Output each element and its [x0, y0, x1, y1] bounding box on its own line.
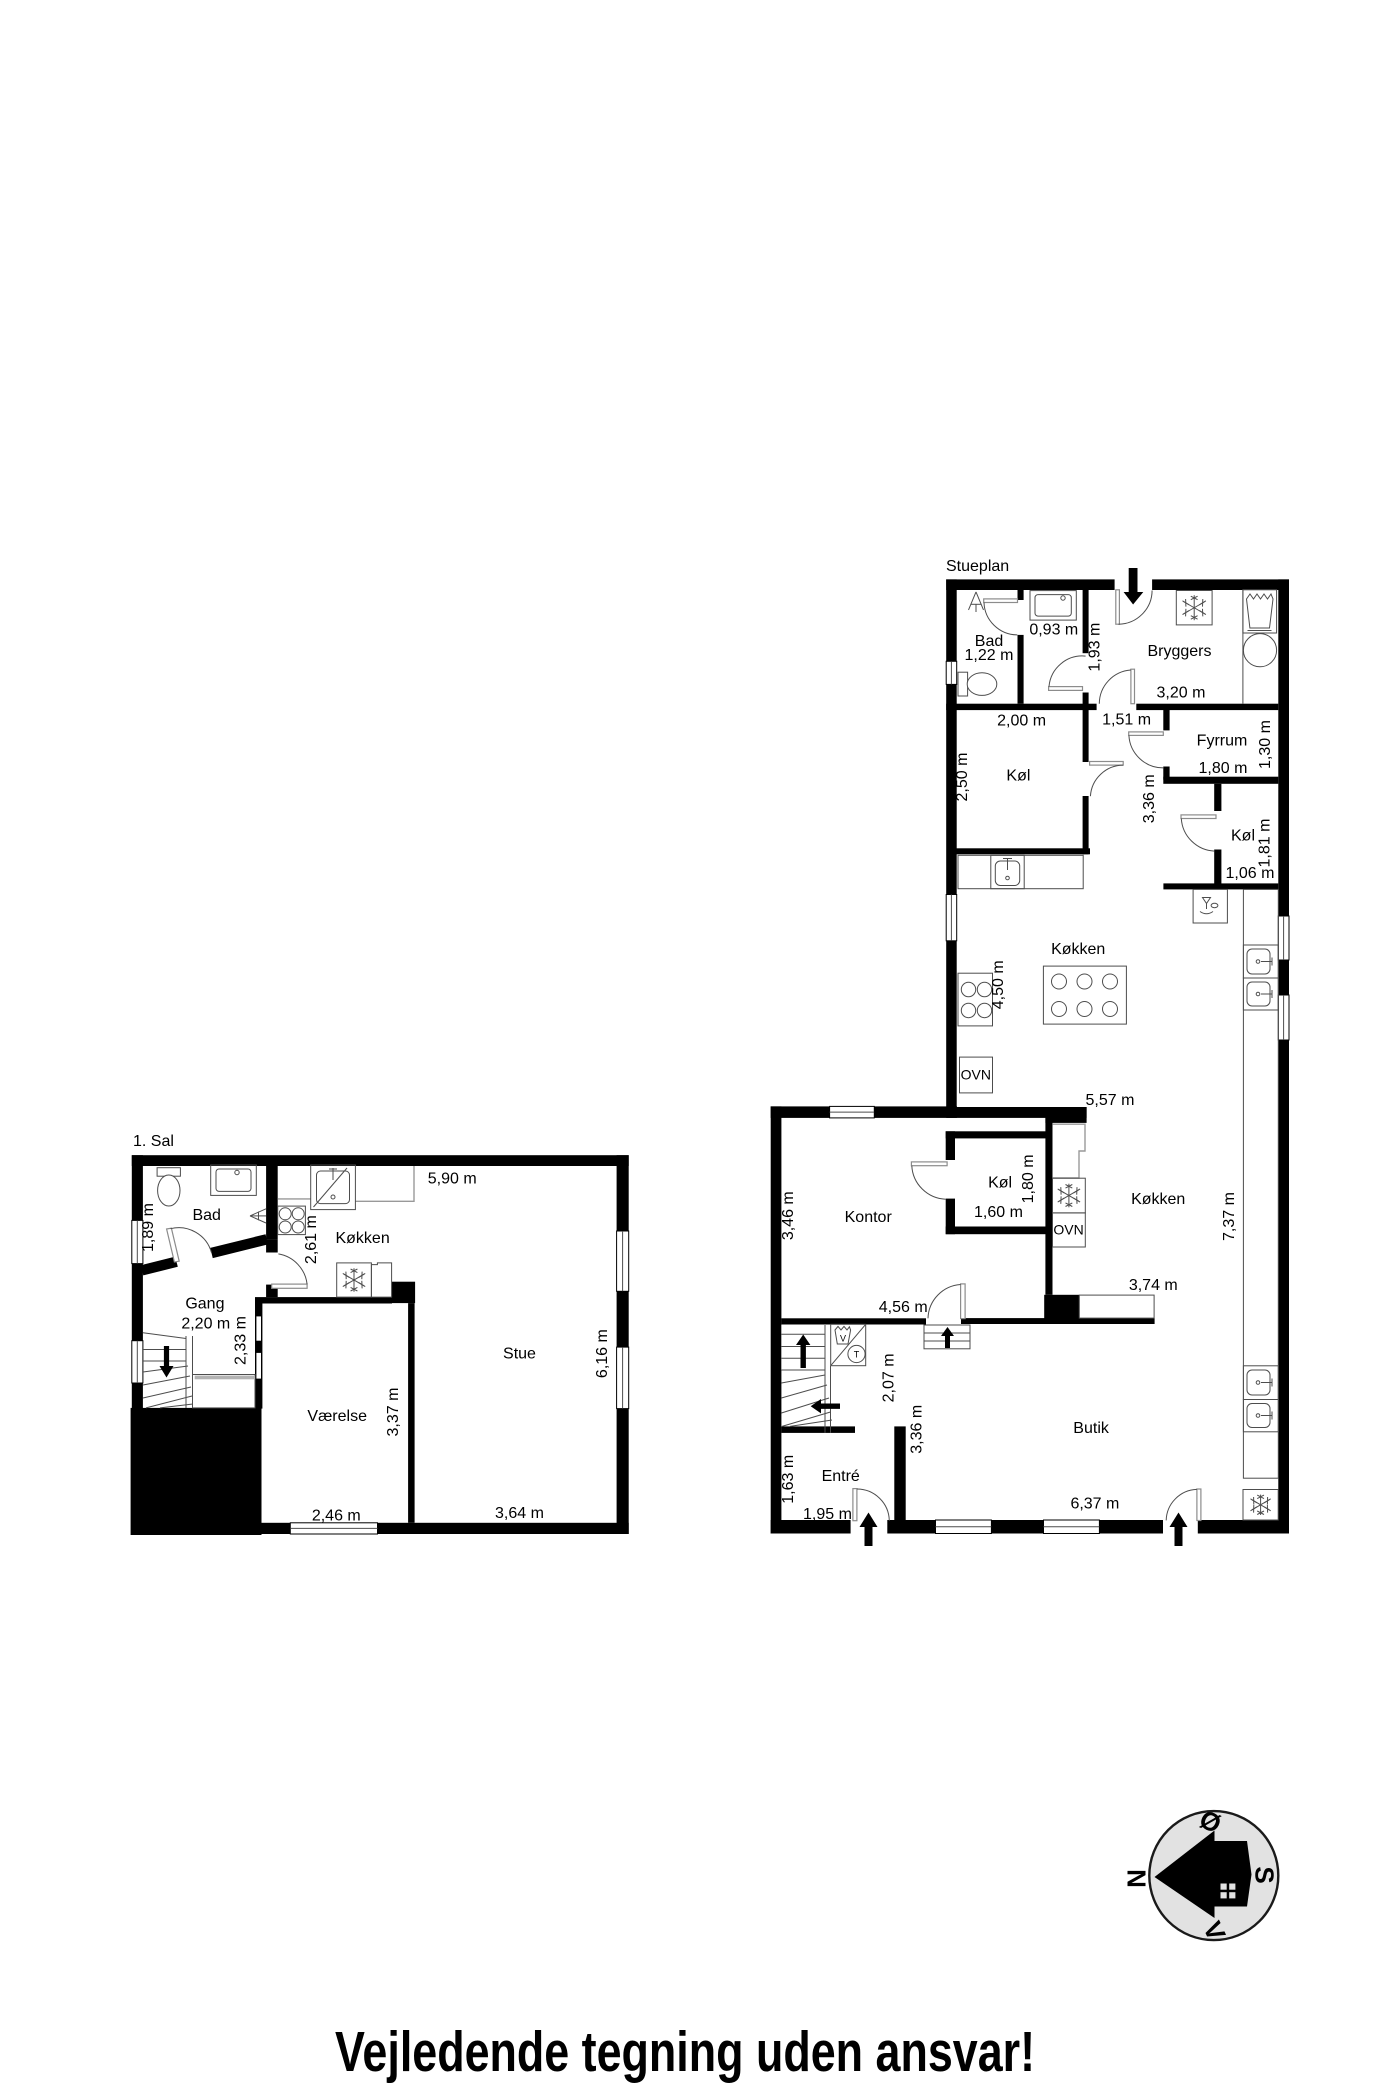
- svg-text:Køl: Køl: [1231, 827, 1255, 844]
- svg-text:1,06 m: 1,06 m: [1226, 865, 1275, 882]
- svg-text:2,33 m: 2,33 m: [233, 1316, 250, 1365]
- svg-text:Fyrrum: Fyrrum: [1197, 732, 1248, 749]
- svg-text:1. Sal: 1. Sal: [133, 1133, 174, 1150]
- svg-text:1,93 m: 1,93 m: [1086, 623, 1103, 672]
- svg-text:3,37 m: 3,37 m: [385, 1388, 402, 1437]
- svg-text:2,61 m: 2,61 m: [303, 1215, 320, 1264]
- svg-text:2,00 m: 2,00 m: [997, 713, 1046, 730]
- svg-text:1,60 m: 1,60 m: [974, 1204, 1023, 1221]
- svg-text:Køl: Køl: [1006, 768, 1030, 785]
- svg-text:1,81 m: 1,81 m: [1257, 819, 1274, 868]
- svg-text:Bryggers: Bryggers: [1147, 643, 1211, 660]
- svg-text:Stue: Stue: [503, 1345, 536, 1362]
- svg-text:1,63 m: 1,63 m: [780, 1455, 797, 1504]
- svg-text:OVN: OVN: [961, 1067, 991, 1083]
- svg-text:3,36 m: 3,36 m: [1141, 774, 1158, 823]
- svg-text:1,30 m: 1,30 m: [1257, 720, 1274, 769]
- svg-text:Gang: Gang: [185, 1296, 224, 1313]
- svg-text:2,50 m: 2,50 m: [954, 753, 971, 802]
- svg-text:5,57 m: 5,57 m: [1086, 1092, 1135, 1109]
- svg-text:Køkken: Køkken: [335, 1230, 389, 1247]
- svg-text:Entré: Entré: [822, 1468, 860, 1485]
- svg-text:3,36 m: 3,36 m: [909, 1405, 926, 1454]
- svg-text:7,37 m: 7,37 m: [1221, 1192, 1238, 1241]
- svg-text:1,95 m: 1,95 m: [803, 1506, 852, 1523]
- svg-text:N: N: [1122, 1869, 1152, 1888]
- svg-text:3,64 m: 3,64 m: [495, 1505, 544, 1522]
- svg-text:6,16 m: 6,16 m: [594, 1329, 611, 1378]
- svg-text:T: T: [854, 1350, 860, 1360]
- svg-text:3,46 m: 3,46 m: [780, 1191, 797, 1240]
- svg-text:2,46 m: 2,46 m: [312, 1508, 361, 1525]
- svg-text:4,50 m: 4,50 m: [990, 960, 1007, 1009]
- svg-text:3,74 m: 3,74 m: [1129, 1277, 1178, 1294]
- svg-text:Kontor: Kontor: [845, 1209, 893, 1226]
- svg-text:OVN: OVN: [1053, 1221, 1083, 1237]
- svg-text:Butik: Butik: [1073, 1420, 1110, 1437]
- svg-text:2,20 m: 2,20 m: [181, 1315, 230, 1332]
- svg-text:Køkken: Køkken: [1051, 941, 1105, 958]
- svg-text:Køkken: Køkken: [1131, 1191, 1185, 1208]
- svg-text:6,37 m: 6,37 m: [1070, 1495, 1119, 1512]
- svg-text:S: S: [1250, 1866, 1280, 1883]
- svg-text:Køl: Køl: [988, 1174, 1012, 1191]
- svg-text:5,90 m: 5,90 m: [428, 1171, 477, 1188]
- svg-text:1,80 m: 1,80 m: [1020, 1154, 1037, 1203]
- svg-text:1,80 m: 1,80 m: [1199, 760, 1248, 777]
- svg-text:0,93 m: 0,93 m: [1029, 621, 1078, 638]
- svg-text:Vejledende tegning uden ansvar: Vejledende tegning uden ansvar!: [335, 2020, 1035, 2083]
- svg-text:1,89 m: 1,89 m: [140, 1203, 157, 1252]
- svg-text:1,51 m: 1,51 m: [1102, 711, 1151, 728]
- svg-text:Værelse: Værelse: [307, 1408, 367, 1425]
- svg-text:4,56 m: 4,56 m: [879, 1299, 928, 1316]
- svg-text:Bad: Bad: [192, 1207, 220, 1224]
- svg-text:Stueplan: Stueplan: [946, 558, 1009, 575]
- svg-text:1,22 m: 1,22 m: [965, 647, 1014, 664]
- svg-text:3,20 m: 3,20 m: [1157, 685, 1206, 702]
- svg-text:V: V: [840, 1334, 846, 1344]
- svg-text:2,07 m: 2,07 m: [881, 1353, 898, 1402]
